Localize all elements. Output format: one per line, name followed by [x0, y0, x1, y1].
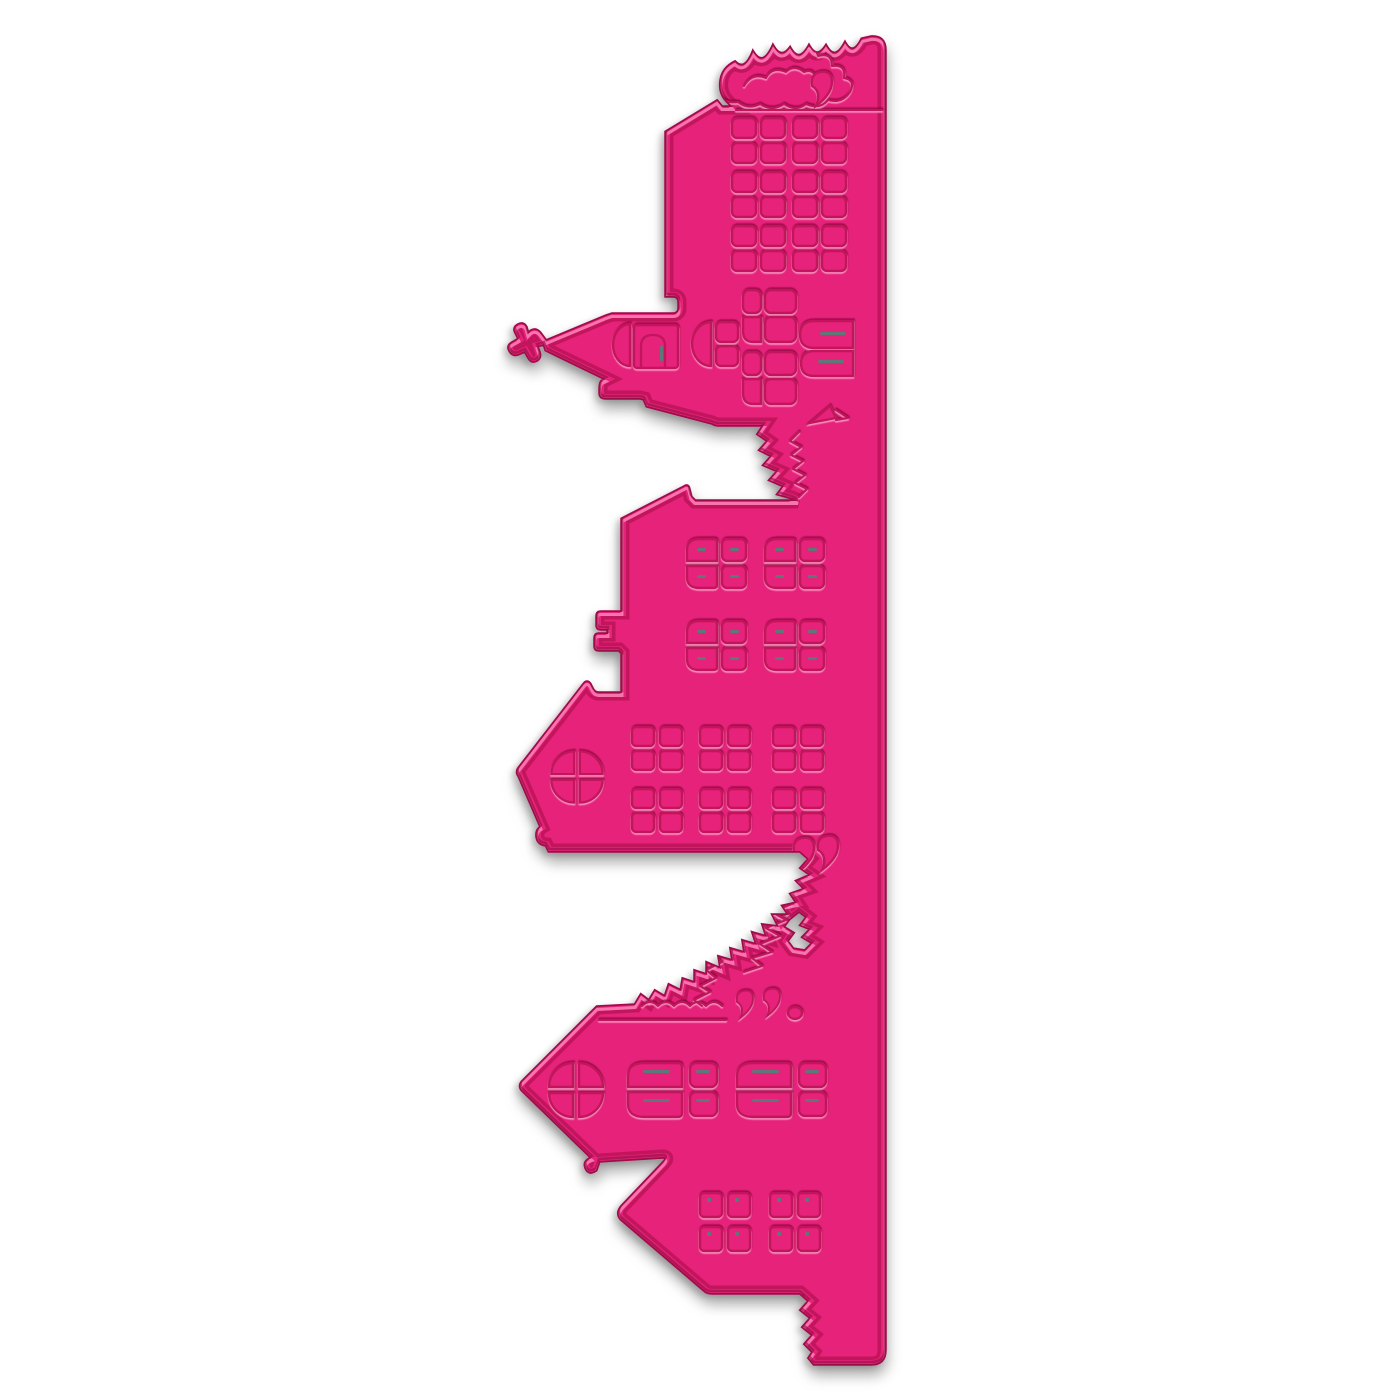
pebble-detail — [788, 1007, 802, 1019]
wide-window — [801, 351, 853, 376]
village-border-die-image: Bright pink metal craft cutting die of a… — [0, 0, 1400, 1400]
product-photo-canvas: Bright pink metal craft cutting die of a… — [0, 0, 1400, 1400]
bush-scallop-edge-bottom — [795, 1297, 803, 1352]
die-body — [509, 35, 885, 1367]
